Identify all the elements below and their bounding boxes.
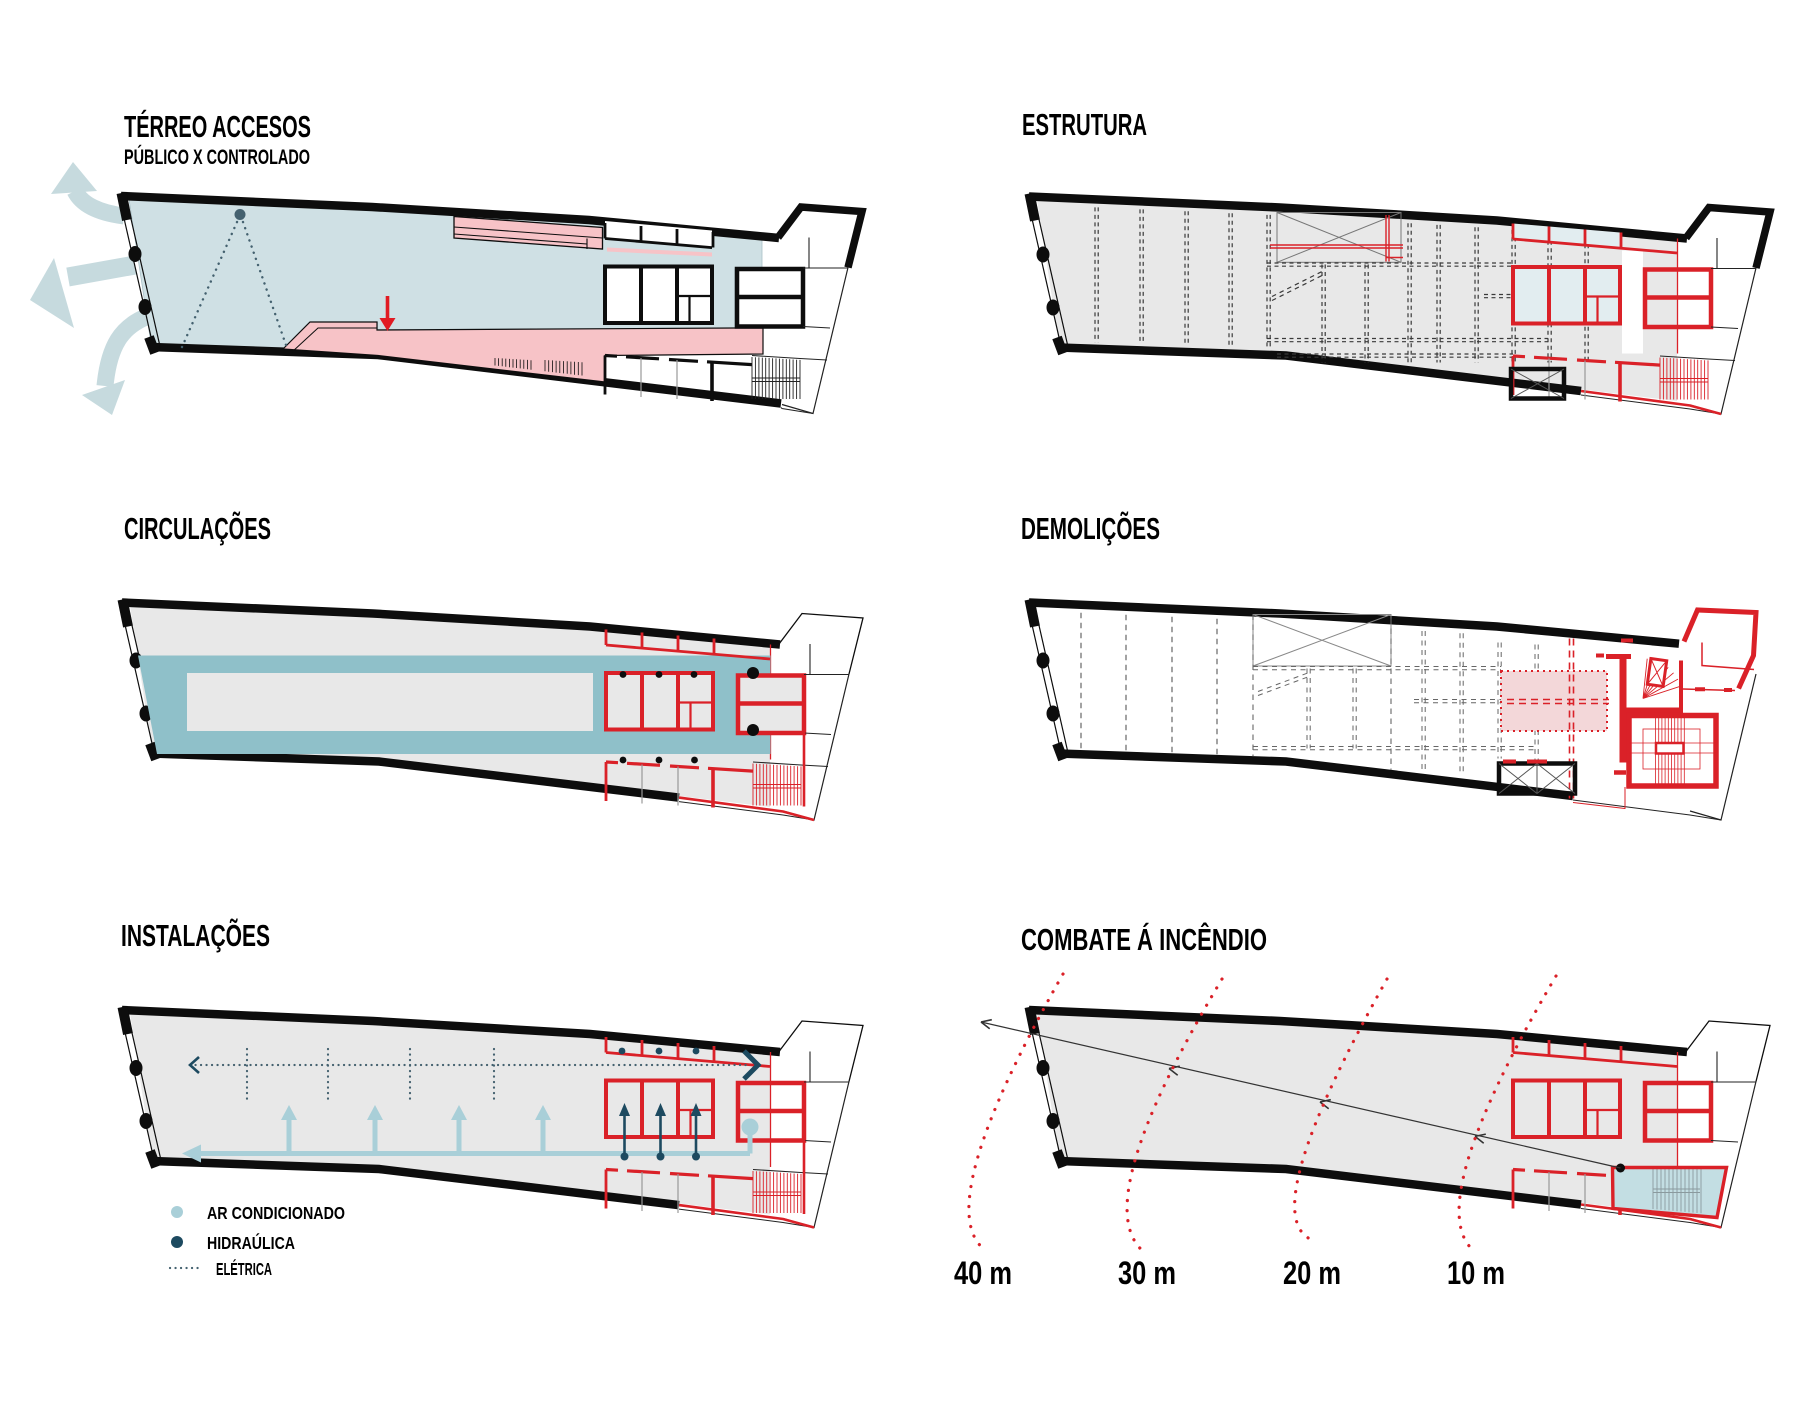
svg-text:DEMOLIÇÕES: DEMOLIÇÕES [1021,510,1160,546]
svg-text:20 m: 20 m [1283,1255,1341,1291]
svg-text:ELÉTRICA: ELÉTRICA [216,1258,272,1279]
svg-text:INSTALAÇÕES: INSTALAÇÕES [121,917,270,953]
svg-text:COMBATE Á INCÊNDIO: COMBATE Á INCÊNDIO [1021,921,1267,957]
svg-text:AR CONDICIONADO: AR CONDICIONADO [207,1203,345,1223]
svg-text:PÚBLICO X CONTROLADO: PÚBLICO X CONTROLADO [124,144,310,169]
svg-text:HIDRAÚLICA: HIDRAÚLICA [207,1232,295,1253]
svg-text:30 m: 30 m [1118,1255,1176,1291]
svg-text:CIRCULAÇÕES: CIRCULAÇÕES [124,510,271,546]
svg-text:TÉRREO ACCESOS: TÉRREO ACCESOS [124,109,311,144]
svg-text:10 m: 10 m [1447,1255,1505,1291]
svg-text:ESTRUTURA: ESTRUTURA [1022,107,1147,142]
svg-text:40 m: 40 m [954,1255,1012,1291]
